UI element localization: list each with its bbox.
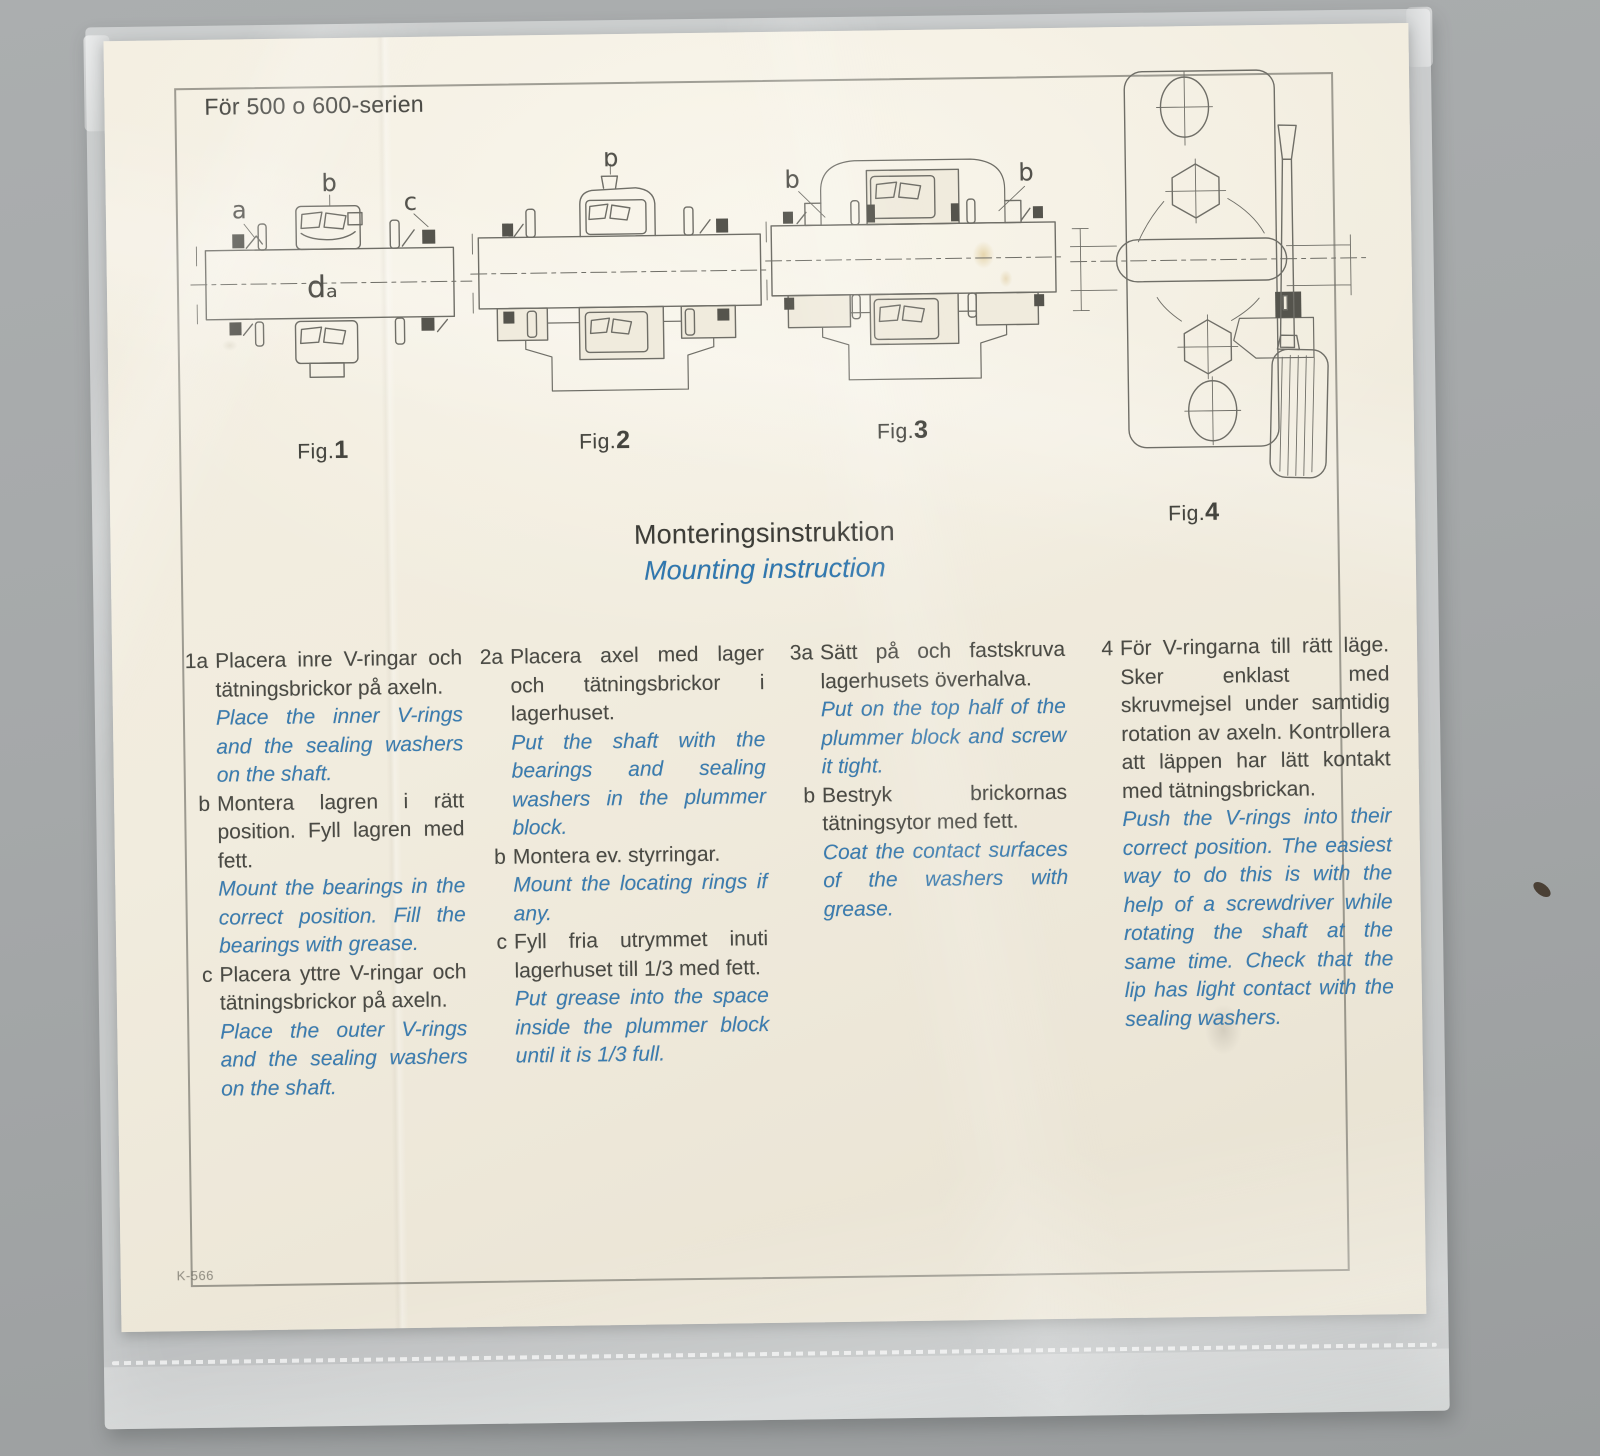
annotation-b-left: b	[784, 165, 800, 193]
annotation-b-right: b	[1018, 158, 1034, 186]
fig-label-number: 3	[914, 416, 929, 444]
instruction-item: b Bestryk brickornas tätningsytor med fe…	[789, 778, 1069, 924]
fig-label-prefix: Fig.	[297, 440, 334, 464]
item-marker: 1a	[182, 648, 208, 677]
instruction-column-1: 1a Placera inre V-ringar och tätningsbri…	[182, 644, 468, 1104]
instruction-swedish: Placera inre V-ringar och tätningsbricko…	[215, 644, 463, 704]
instruction-english: Place the inner V-rings and the sealing …	[216, 701, 464, 790]
item-marker: b	[184, 790, 210, 819]
item-marker: b	[480, 843, 506, 872]
instruction-swedish: För V-ringarna till rätt läge. Sker enkl…	[1120, 631, 1391, 806]
series-note: För 500 o 600-serien	[204, 91, 424, 121]
figure-4-label: Fig.4	[1168, 498, 1220, 528]
fig-label-number: 2	[616, 426, 631, 454]
mounting-slot	[1184, 376, 1241, 445]
instruction-item: 2a Placera axel med lager och tätningsbr…	[477, 640, 767, 843]
fig-label-number: 1	[334, 436, 349, 464]
instruction-item: 4 För V-ringarna till rätt läge. Sker en…	[1087, 631, 1395, 1034]
instruction-item: 1a Placera inre V-ringar och tätningsbri…	[182, 644, 464, 790]
fig-label-prefix: Fig.	[1168, 502, 1205, 526]
surface-speck	[1531, 879, 1554, 900]
fig-label-prefix: Fig.	[877, 420, 914, 444]
sheet-title: Monteringsinstruktion Mounting instructi…	[554, 515, 975, 588]
plastic-bag: För 500 o 600-serien	[85, 9, 1449, 1430]
bearing	[296, 206, 363, 250]
instruction-column-3: 3a Sätt på och fastskruva lagerhusets öv…	[787, 636, 1069, 925]
instruction-english: Put grease into the space inside the plu…	[515, 982, 770, 1071]
instruction-english: Put the shaft with the bearings and seal…	[511, 726, 767, 844]
fig-label-prefix: Fig.	[579, 430, 616, 454]
hex-bolt	[1165, 159, 1226, 224]
title-english: Mounting instruction	[555, 551, 975, 588]
instruction-swedish: Montera lagren i rätt position. Fyll lag…	[217, 787, 465, 876]
mounting-slot	[1156, 71, 1213, 146]
instruction-swedish: Placera yttre V-ringar och tätningsbrick…	[219, 958, 467, 1018]
v-ring-seal	[228, 224, 268, 347]
instruction-swedish: Placera axel med lager och tätningsbrick…	[510, 640, 765, 729]
figure-2-drawing: b	[467, 150, 771, 434]
item-marker: 2a	[477, 644, 503, 673]
hex-bolt	[1177, 314, 1238, 379]
right-bracket	[1286, 235, 1351, 296]
figure-2-label: Fig.2	[579, 426, 631, 456]
fig-label-number: 4	[1205, 498, 1220, 526]
shaft	[478, 234, 761, 309]
figure-3-drawing: b b	[762, 142, 1066, 431]
instruction-english: Mount the locating rings if any.	[513, 868, 768, 929]
instruction-item: b Montera lagren i rätt position. Fyll l…	[184, 787, 466, 962]
instruction-english: Push the V-rings into their correct posi…	[1122, 802, 1394, 1034]
figure-3-label: Fig.3	[877, 416, 929, 446]
instruction-english: Place the outer V-rings and the sealing …	[220, 1015, 468, 1104]
bag-corner-fold	[1406, 7, 1433, 67]
instruction-swedish: Montera ev. styrringar.	[513, 840, 767, 872]
shaft	[771, 222, 1056, 296]
title-swedish: Monteringsinstruktion	[554, 515, 974, 552]
instruction-column-4: 4 För V-ringarna till rätt läge. Sker en…	[1087, 631, 1395, 1034]
instruction-english: Mount the bearings in the correct positi…	[218, 872, 466, 961]
figure-1-label: Fig.1	[297, 436, 349, 466]
bearing	[295, 321, 358, 378]
item-marker: 3a	[787, 639, 813, 668]
annotation-c: c	[404, 188, 418, 216]
print-code: K-566	[177, 1268, 214, 1284]
instruction-sheet: För 500 o 600-serien	[103, 23, 1426, 1332]
instruction-column-2: 2a Placera axel med lager och tätningsbr…	[477, 640, 770, 1071]
annotation-da: dₐ	[307, 270, 338, 305]
annotation-b: b	[603, 150, 619, 172]
item-marker: 4	[1087, 635, 1113, 664]
bearing	[579, 176, 655, 237]
instruction-english: Coat the contact surfaces of the washers…	[823, 835, 1069, 924]
figure-4-drawing	[1066, 57, 1372, 509]
instruction-swedish: Bestryk brickornas tätningsytor med fett…	[822, 778, 1068, 838]
item-marker: c	[186, 961, 212, 990]
annotation-b: b	[321, 169, 337, 197]
instruction-item: c Placera yttre V-ringar och tätningsbri…	[186, 958, 468, 1104]
instruction-swedish: Sätt på och fastskruva lagerhusets överh…	[820, 636, 1066, 696]
left-bracket	[1070, 228, 1117, 311]
v-ring-seal	[1233, 291, 1314, 358]
instruction-english: Put on the top half of the plummer block…	[821, 693, 1067, 782]
figure-1-drawing: a b c dₐ	[187, 159, 476, 433]
instruction-swedish: Fyll fria utrymmet inuti lagerhuset till…	[514, 925, 769, 986]
instruction-item: 3a Sätt på och fastskruva lagerhusets öv…	[787, 636, 1067, 782]
instruction-item: b Montera ev. styrringar. Mount the loca…	[480, 840, 768, 929]
item-marker: b	[789, 782, 815, 811]
instruction-item: c Fyll fria utrymmet inuti lagerhuset ti…	[481, 925, 770, 1071]
item-marker: c	[481, 929, 507, 958]
annotation-a: a	[232, 196, 247, 224]
